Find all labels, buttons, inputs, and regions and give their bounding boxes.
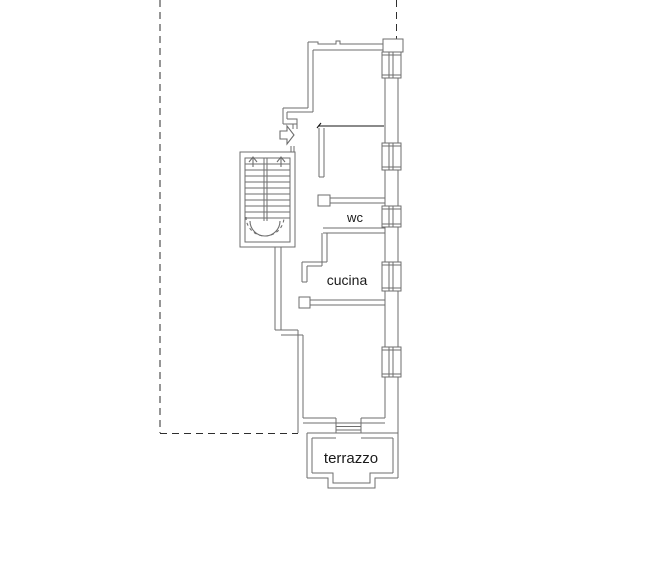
- room-label-wc: wc: [347, 211, 363, 224]
- door-jamb: [318, 195, 330, 206]
- floor-plan-canvas: wc cucina terrazzo: [0, 0, 666, 587]
- door-jamb: [299, 297, 310, 308]
- room-label-cucina: cucina: [327, 273, 367, 287]
- door-threshold-symbol: [336, 418, 361, 433]
- exterior-walls: [275, 41, 398, 433]
- room-label-terrazzo: terrazzo: [324, 451, 378, 466]
- stair-walkline-dashed: [246, 217, 284, 236]
- entry-arrow-icon: [280, 126, 294, 144]
- floor-plan-drawing: [0, 0, 666, 587]
- stair-curve: [250, 221, 280, 236]
- staircase-symbol: [240, 146, 295, 247]
- corner-pillar: [383, 39, 403, 52]
- landing-stub-wall: [291, 146, 294, 152]
- emphasis-wall: [317, 123, 384, 128]
